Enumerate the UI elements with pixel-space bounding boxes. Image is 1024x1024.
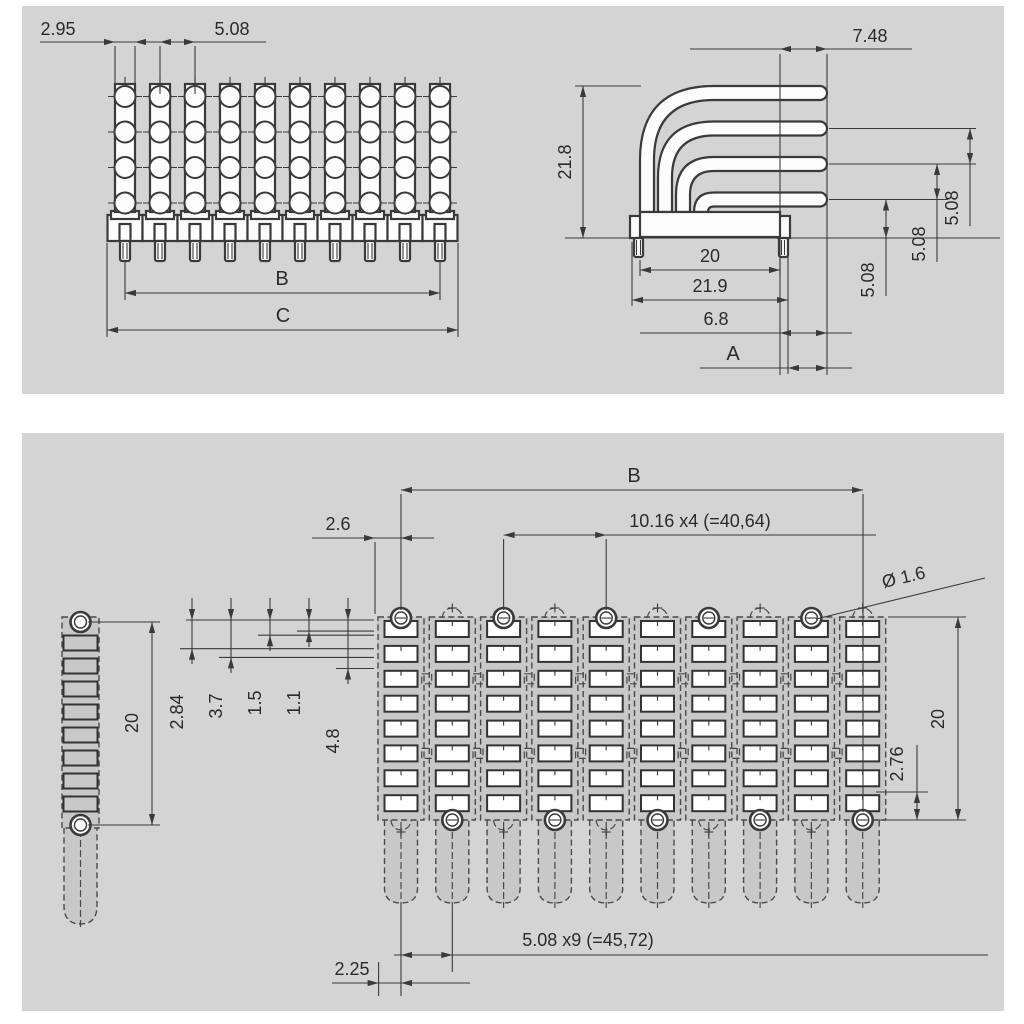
side-view-component — [565, 86, 1000, 257]
dim-tip-length: 7.48 — [852, 26, 887, 46]
dim-stack-4: 1.1 — [284, 690, 304, 715]
dim-pin-span: 20 — [700, 246, 720, 266]
dim-hole-pitch: 10.16 x4 (=40,64) — [629, 511, 771, 531]
dim-c-label: C — [276, 305, 290, 327]
dim-led-width: 2.95 — [40, 19, 75, 39]
footprint-panel: 20 B 2.6 10.16 x4 (=40,64) — [22, 433, 1004, 1011]
dim-a-label: A — [726, 343, 740, 365]
dim-fp-b: B — [627, 465, 640, 487]
dim-stack-1: 2.84 — [167, 694, 187, 729]
dim-stack-3: 1.5 — [245, 690, 265, 715]
dim-pin-edge: 2.25 — [334, 959, 369, 979]
dim-b-label: B — [275, 268, 288, 290]
dim-row-pitch-1: 5.08 — [942, 190, 962, 225]
dim-side-span: 20 — [122, 713, 142, 733]
dim-edge-offset: 2.6 — [325, 514, 350, 534]
front-view-led-array — [108, 77, 458, 261]
dim-led-pitch: 5.08 — [214, 19, 249, 39]
dim-overhang: 6.8 — [703, 309, 728, 329]
dim-body-width: 21.9 — [692, 276, 727, 296]
component-views-drawing: 2.95 5.08 B C — [22, 6, 1004, 394]
dim-stack-5: 4.8 — [323, 728, 343, 753]
dim-fp-span: 20 — [928, 709, 948, 729]
component-views-panel: 2.95 5.08 B C — [22, 6, 1004, 394]
dim-height: 21.8 — [555, 144, 575, 179]
datasheet-page: 2.95 5.08 B C — [0, 0, 1024, 1024]
dim-hole-diameter: Ø 1.6 — [880, 562, 927, 592]
dim-pin-pitch: 5.08 x9 (=45,72) — [522, 930, 654, 950]
dim-pad-to-hole: 2.76 — [887, 746, 907, 781]
footprint-side-pattern: 20 — [62, 612, 160, 929]
dim-stack-2: 3.7 — [206, 693, 226, 718]
dim-row-pitch-2: 5.08 — [909, 226, 929, 261]
footprint-drawing: 20 B 2.6 10.16 x4 (=40,64) — [22, 433, 1004, 1011]
dim-row-pitch-3: 5.08 — [858, 262, 878, 297]
footprint-main-pattern — [377, 604, 886, 909]
